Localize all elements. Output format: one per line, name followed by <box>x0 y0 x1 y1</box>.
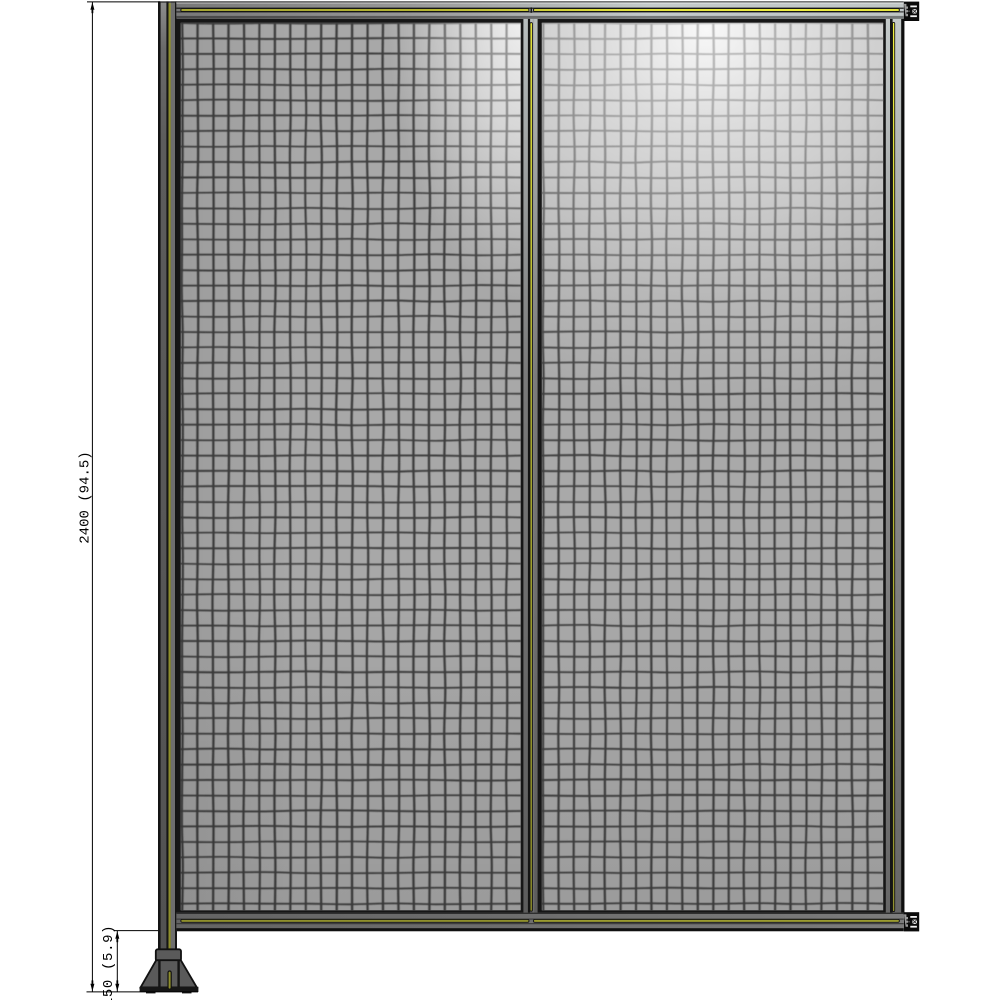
svg-text:2400 (94.5): 2400 (94.5) <box>77 451 93 543</box>
svg-text:150 (5.9): 150 (5.9) <box>101 925 117 1000</box>
